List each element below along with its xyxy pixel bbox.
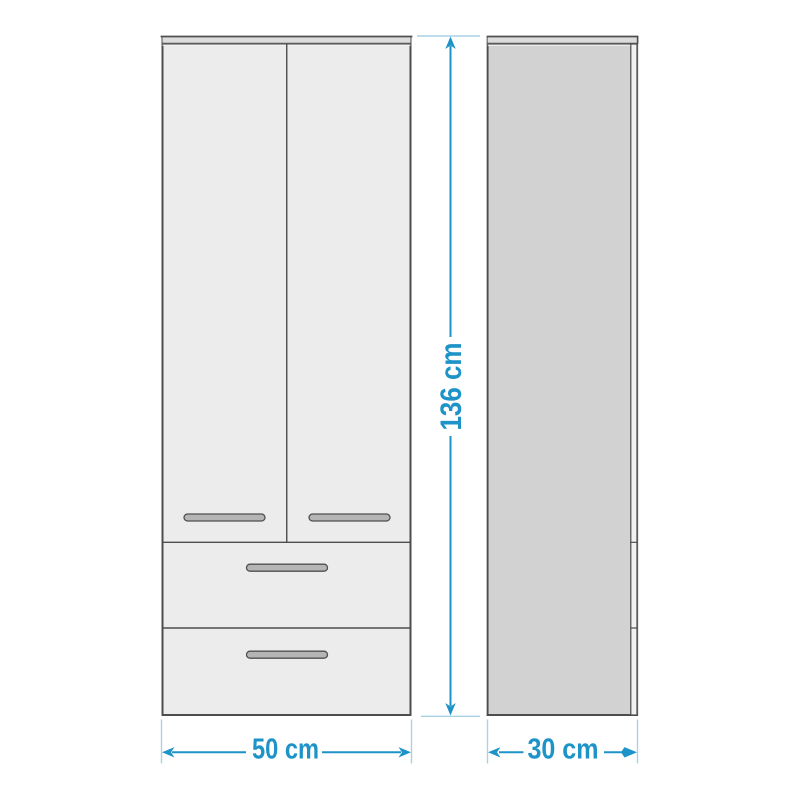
svg-text:50 cm: 50 cm (252, 734, 319, 766)
svg-text:30 cm: 30 cm (528, 734, 599, 766)
svg-text:136 cm: 136 cm (435, 343, 468, 431)
